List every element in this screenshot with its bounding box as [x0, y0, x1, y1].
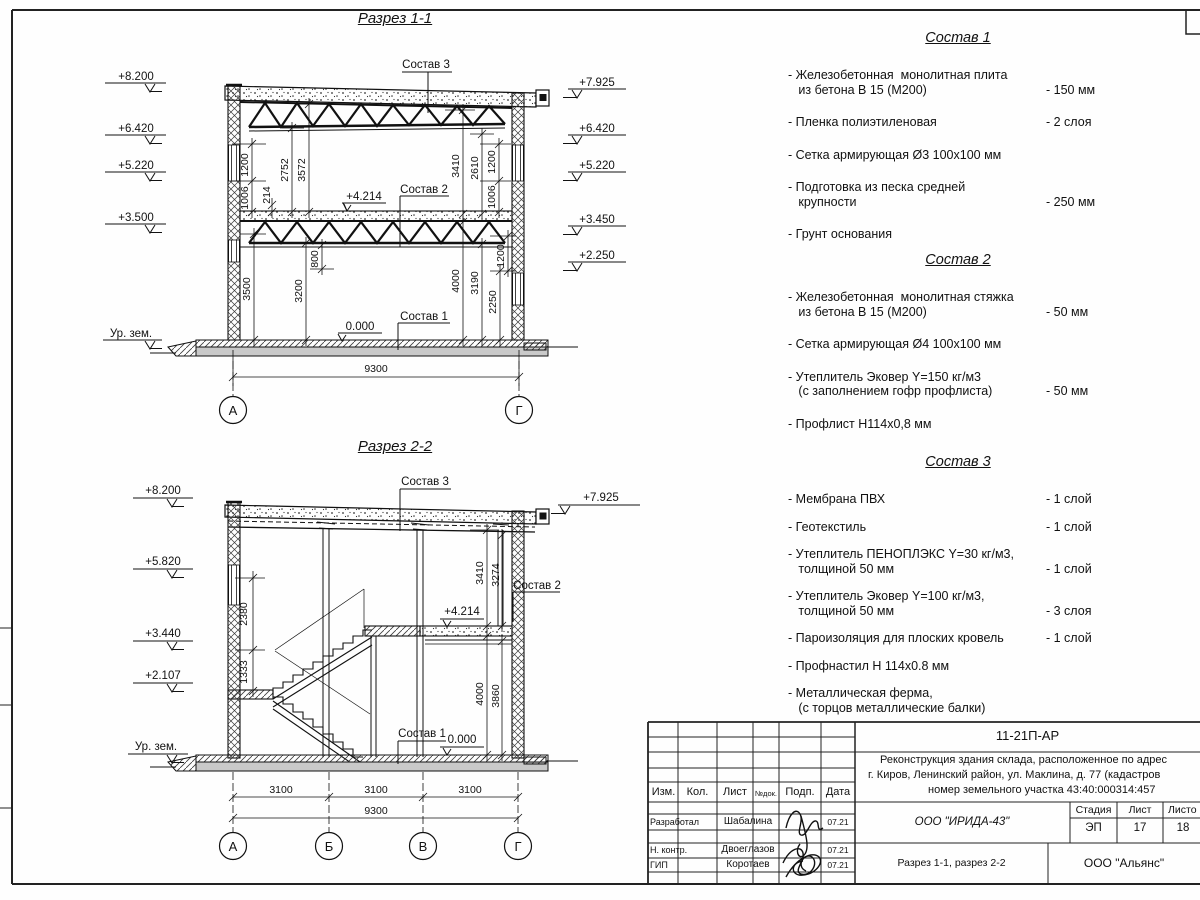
col-kol: Кол. — [678, 786, 717, 798]
axis-letters-r1: А Г — [229, 403, 523, 418]
label-sostav2-r1: Состав 2 — [400, 184, 448, 196]
sheet-number: 17 — [1117, 822, 1163, 834]
dim-2250: 2250 — [487, 290, 499, 314]
dim-1333: 1333 — [238, 660, 250, 684]
doc-code: 11-21П-АР — [855, 728, 1200, 743]
item-name: - Утеплитель Эковер Y=100 кг/м3, толщино… — [788, 589, 984, 618]
list-item: - Профнастил Н 114х0.8 мм — [788, 659, 1128, 674]
elev-2250-right: +2.250 — [579, 250, 615, 262]
dim-3100-1: 3100 — [269, 784, 293, 796]
item-name: - Грунт основания — [788, 227, 892, 241]
row-name: Двоеглазов — [717, 844, 779, 855]
contractor-org: ООО "Альянс" — [1048, 856, 1200, 870]
dim-3410: 3410 — [450, 154, 462, 178]
dim-1006-left: 1006 — [239, 186, 251, 210]
col-izm: Изм. — [649, 786, 678, 798]
sostav-1-title: Состав 1 — [788, 30, 1128, 46]
elev-8200-r2: +8.200 — [145, 485, 181, 497]
roof-truss — [240, 102, 512, 131]
elev-3440-r2: +3.440 — [145, 628, 181, 640]
list-item: - Утеплитель Эковер Y=150 кг/м3 (с запол… — [788, 370, 1128, 399]
item-value: - 250 мм — [1046, 195, 1095, 210]
floor-truss — [240, 221, 512, 247]
item-name: - Пароизоляция для плоских кровель — [788, 631, 1004, 645]
label-sostav3-r1: Состав 3 — [402, 59, 450, 71]
col-list: Лист — [717, 786, 753, 798]
axis-v-r2: В — [419, 839, 428, 854]
item-value: - 1 слой — [1046, 562, 1092, 577]
list-item: - Пароизоляция для плоских кровель- 1 сл… — [788, 631, 1128, 646]
elev-marks-r1-right — [563, 89, 626, 271]
razrez-1-1-title: Разрез 1-1 — [330, 10, 460, 27]
item-name: - Железобетонная монолитная стяжка из бе… — [788, 290, 1014, 319]
label-sostav1-r1: Состав 1 — [400, 311, 448, 323]
drawing-title: Разрез 1-1, разрез 2-2 — [857, 857, 1046, 869]
item-name: - Профнастил Н 114х0.8 мм — [788, 659, 949, 673]
elev-5820-r2: +5.820 — [145, 556, 181, 568]
dim-3572: 3572 — [296, 158, 308, 182]
elev-4214-r2: +4.214 — [444, 606, 480, 618]
item-name: - Металлическая ферма, (с торцов металли… — [788, 686, 985, 715]
ground-slab-r1 — [150, 340, 578, 356]
elev-5220-right: +5.220 — [579, 160, 615, 172]
sheet-label: Лист — [1117, 804, 1163, 816]
axis-g-r2: Г — [514, 839, 521, 854]
col-data: Дата — [821, 786, 855, 798]
item-value: - 50 мм — [1046, 384, 1088, 399]
item-value: - 1 слой — [1046, 631, 1092, 646]
dim-800: 800 — [309, 250, 321, 268]
item-value: - 3 слоя — [1046, 604, 1091, 619]
razrez-2-2-drawing: 2380 1333 3410 3274 4000 3860 3100 3100 … — [128, 476, 640, 860]
item-name: - Утеплитель Эковер Y=150 кг/м3 (с запол… — [788, 370, 992, 399]
dim-214: 214 — [261, 186, 273, 204]
ground-level-label-r2: Ур. зем. — [135, 741, 177, 753]
design-org: ООО "ИРИДА-43" — [857, 816, 1067, 828]
item-value: - 50 мм — [1046, 305, 1088, 320]
elev-0000: 0.000 — [346, 321, 375, 333]
item-name: - Пленка полиэтиленовая — [788, 115, 937, 129]
signatures — [783, 811, 823, 877]
project-name-line3: номер земельного участка 43:40:000314:45… — [928, 784, 1156, 796]
row-date: 07.21 — [821, 845, 855, 855]
dim-3410-r2: 3410 — [474, 561, 486, 585]
axis-a-r2: А — [229, 839, 238, 854]
list-item: - Мембрана ПВХ- 1 слой — [788, 492, 1128, 507]
elev-8200-left: +8.200 — [118, 71, 154, 83]
dim-3100-2: 3100 — [364, 784, 388, 796]
row-date: 07.21 — [821, 860, 855, 870]
dim-3500: 3500 — [241, 277, 253, 301]
list-item: - Геотекстиль- 1 слой — [788, 520, 1128, 535]
dim-3190: 3190 — [469, 271, 481, 295]
row-role: Н. контр. — [650, 845, 687, 855]
axis-a-r1: А — [229, 403, 238, 418]
elev-2107-r2: +2.107 — [145, 670, 181, 682]
ground-level-label: Ур. зем. — [110, 328, 152, 340]
elev-4214-mid: +4.214 — [346, 191, 382, 203]
sostav-3-list: Состав 3 - Мембрана ПВХ- 1 слой - Геотек… — [788, 454, 1128, 728]
dim-4000: 4000 — [450, 269, 462, 293]
dim-3860: 3860 — [490, 684, 502, 708]
item-value: - 150 мм — [1046, 83, 1095, 98]
label-sostav1-r2: Состав 1 — [398, 728, 446, 740]
dim-3100-3: 3100 — [458, 784, 482, 796]
dim-4000-r2: 4000 — [474, 682, 486, 706]
list-item: - Подготовка из песка средней крупности-… — [788, 180, 1128, 209]
axis-b-r2: Б — [325, 839, 334, 854]
sostav-2-list: Состав 2 - Железобетонная монолитная стя… — [788, 252, 1128, 449]
item-name: - Утеплитель ПЕНОПЛЭКС Y=30 кг/м3, толщи… — [788, 547, 1014, 576]
list-item: - Профлист Н114х0,8 мм — [788, 417, 1128, 432]
row-name: Коротаев — [717, 859, 779, 870]
dim-1200-left: 1200 — [239, 153, 251, 177]
dim-1006-right: 1006 — [486, 185, 498, 209]
item-name: - Профлист Н114х0,8 мм — [788, 417, 932, 431]
dim-3200: 3200 — [293, 279, 305, 303]
list-item: - Сетка армирующая Ø4 100х100 мм — [788, 337, 1128, 352]
stage-label: Стадия — [1070, 804, 1117, 816]
item-name: - Мембрана ПВХ — [788, 492, 885, 506]
sheets-label: Листо — [1168, 804, 1197, 816]
row-role: Разработал — [650, 817, 699, 827]
col-ndok: №док. — [753, 789, 779, 798]
dim-span-9300: 9300 — [364, 363, 388, 375]
elev-7925-right: +7.925 — [579, 77, 615, 89]
razrez-2-2-title: Разрез 2-2 — [330, 438, 460, 455]
dim-3274: 3274 — [490, 563, 502, 587]
axis-letters-r2: А Б В Г — [229, 839, 522, 854]
razrez-1-1-drawing: 1200 1006 214 2752 3572 3410 2610 1200 1… — [103, 59, 626, 424]
row-role: ГИП — [650, 860, 668, 870]
list-item: - Грунт основания — [788, 227, 1128, 242]
drawing-sheet: 1200 1006 214 2752 3572 3410 2610 1200 1… — [0, 0, 1200, 900]
corner-stamp-box — [1186, 10, 1200, 34]
dim-2752: 2752 — [279, 158, 291, 182]
elev-3500-left: +3.500 — [118, 212, 154, 224]
item-name: - Подготовка из песка средней крупности — [788, 180, 965, 209]
item-value: - 2 слоя — [1046, 115, 1091, 130]
elev-3450-right: +3.450 — [579, 214, 615, 226]
elev-5220-left: +5.220 — [118, 160, 154, 172]
item-value: - 1 слой — [1046, 492, 1092, 507]
list-item: - Железобетонная монолитная плита из бет… — [788, 68, 1128, 97]
sostav-1-list: Состав 1 - Железобетонная монолитная пли… — [788, 30, 1128, 260]
row-name: Шабалина — [717, 816, 779, 827]
elev-7925-r2: +7.925 — [583, 492, 619, 504]
label-sostav2-r2: Состав 2 — [513, 580, 561, 592]
dim-texts-r2: 2380 1333 3410 3274 4000 3860 3100 3100 … — [238, 561, 502, 817]
list-item: - Утеплитель Эковер Y=100 кг/м3, толщино… — [788, 589, 1128, 618]
sostav-2-title: Состав 2 — [788, 252, 1128, 268]
item-name: - Сетка армирующая Ø4 100х100 мм — [788, 337, 1001, 351]
item-name: - Геотекстиль — [788, 520, 866, 534]
sostav-3-title: Состав 3 — [788, 454, 1128, 470]
sheets-total: 18 — [1163, 822, 1200, 834]
dim-span-9300-r2: 9300 — [364, 805, 388, 817]
label-sostav3-r2: Состав 3 — [401, 476, 449, 488]
ground-slab-r2 — [150, 755, 578, 771]
row-date: 07.21 — [821, 817, 855, 827]
dim-1200-right2: 1200 — [495, 244, 507, 268]
list-item: - Железобетонная монолитная стяжка из бе… — [788, 290, 1128, 319]
list-item: - Утеплитель ПЕНОПЛЭКС Y=30 кг/м3, толщи… — [788, 547, 1128, 576]
dim-1200-right: 1200 — [486, 150, 498, 174]
elev-6420-left: +6.420 — [118, 123, 154, 135]
col-podp: Подп. — [779, 786, 821, 798]
item-name: - Железобетонная монолитная плита из бет… — [788, 68, 1007, 97]
stage-value: ЭП — [1070, 822, 1117, 834]
project-name-line2: г. Киров, Ленинский район, ул. Маклина, … — [868, 769, 1160, 781]
axes-r1 — [220, 350, 533, 424]
list-item: - Металлическая ферма, (с торцов металли… — [788, 686, 1128, 715]
item-value: - 1 слой — [1046, 520, 1092, 535]
dim-2610: 2610 — [469, 156, 481, 180]
item-name: - Сетка армирующая Ø3 100х100 мм — [788, 148, 1001, 162]
list-item: - Пленка полиэтиленовая- 2 слоя — [788, 115, 1128, 130]
axis-g-r1: Г — [515, 403, 522, 418]
elev-6420-right: +6.420 — [579, 123, 615, 135]
dim-2380: 2380 — [238, 602, 250, 626]
list-item: - Сетка армирующая Ø3 100х100 мм — [788, 148, 1128, 163]
elev-0000-r2: 0.000 — [448, 734, 477, 746]
project-name-line1: Реконструкция здания склада, расположенн… — [880, 754, 1167, 766]
